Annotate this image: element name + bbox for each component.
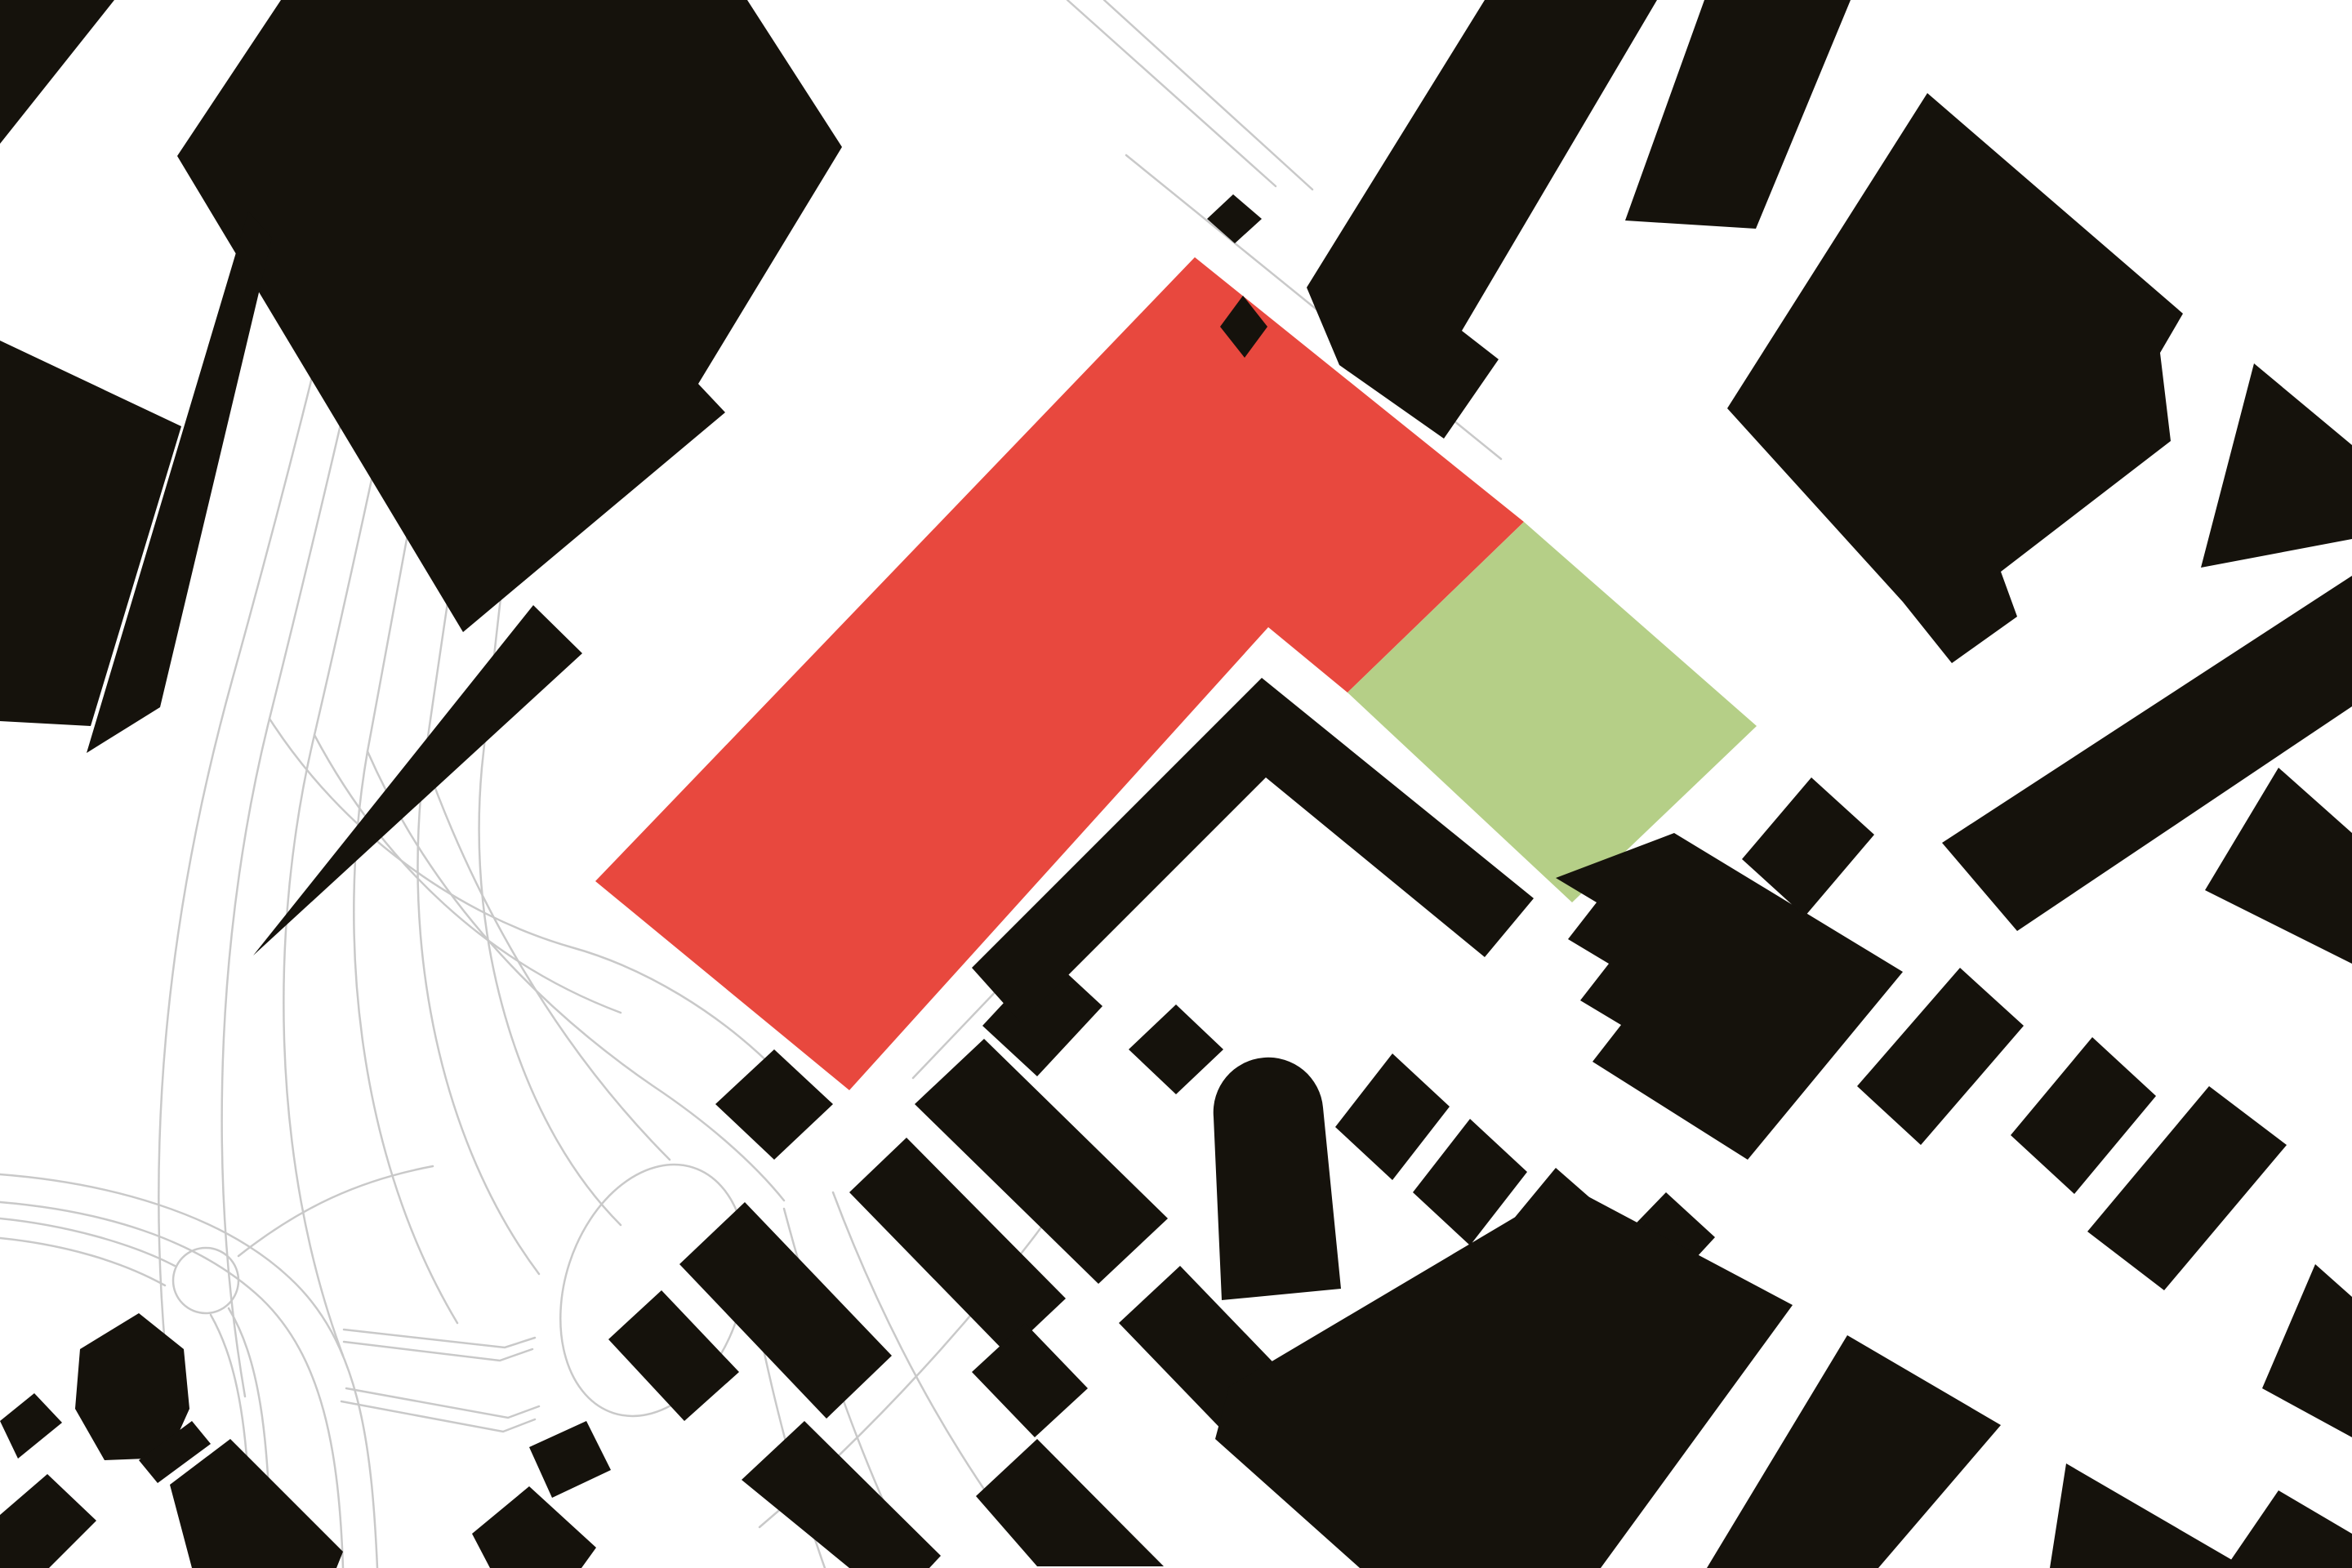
figure-ground-plan: [0, 0, 2352, 1568]
site-plan-map: [0, 0, 2352, 1568]
